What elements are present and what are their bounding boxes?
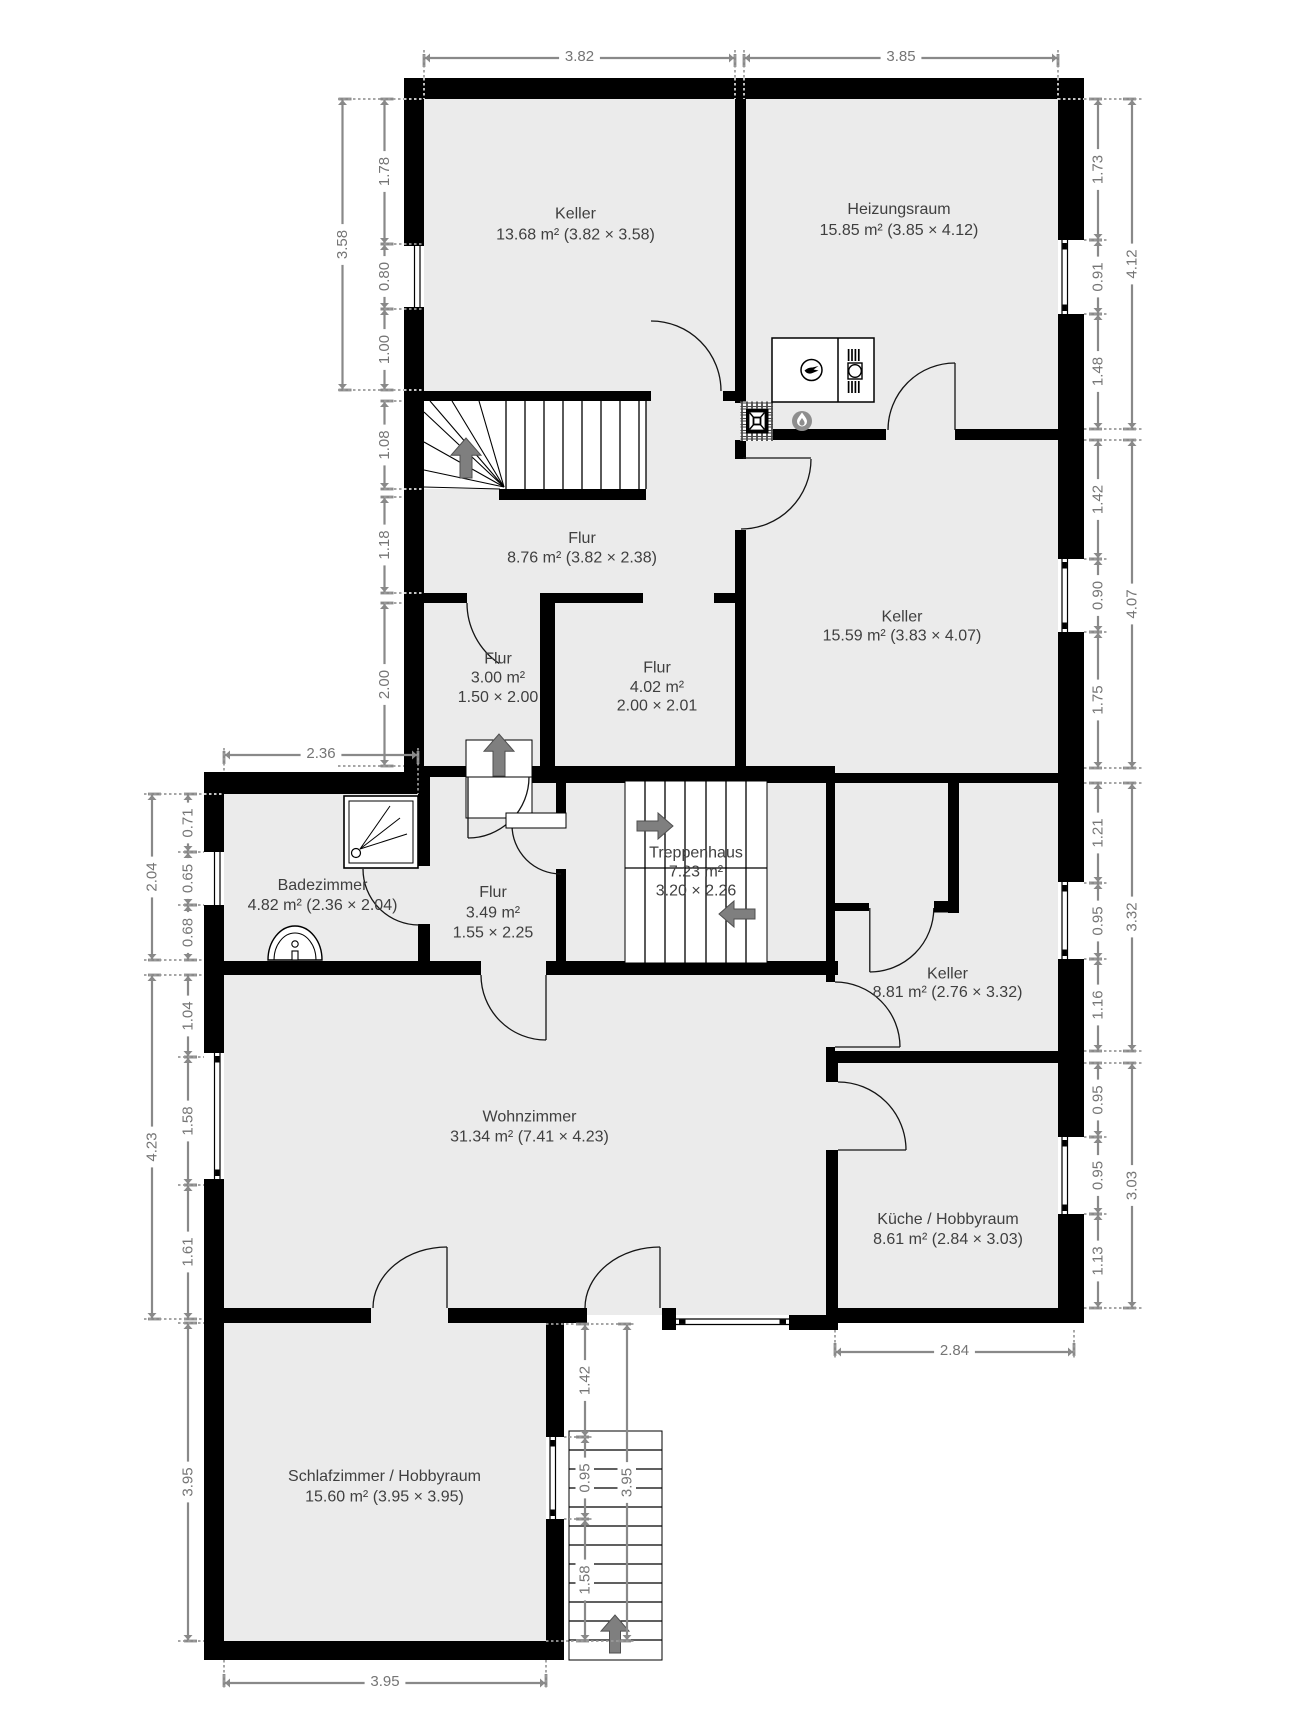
- svg-text:3.00 m²: 3.00 m²: [471, 670, 526, 687]
- svg-text:1.16: 1.16: [1090, 990, 1107, 1019]
- svg-text:Flur: Flur: [479, 884, 507, 901]
- svg-text:15.59 m² (3.83 × 4.07): 15.59 m² (3.83 × 4.07): [823, 628, 982, 645]
- svg-text:8.81 m² (2.76 × 3.32): 8.81 m² (2.76 × 3.32): [873, 984, 1023, 1001]
- svg-text:15.85 m² (3.85 × 4.12): 15.85 m² (3.85 × 4.12): [820, 222, 979, 239]
- svg-text:1.13: 1.13: [1090, 1246, 1107, 1275]
- svg-text:0.71: 0.71: [180, 808, 197, 837]
- svg-text:Flur: Flur: [643, 660, 671, 677]
- svg-text:2.00: 2.00: [376, 670, 393, 699]
- svg-text:1.58: 1.58: [180, 1106, 197, 1135]
- svg-text:4.82 m² (2.36 × 2.04): 4.82 m² (2.36 × 2.04): [248, 897, 398, 914]
- svg-text:Flur: Flur: [484, 651, 512, 668]
- svg-text:13.68 m² (3.82 × 3.58): 13.68 m² (3.82 × 3.58): [496, 227, 655, 244]
- svg-text:0.90: 0.90: [1090, 581, 1107, 610]
- svg-text:1.42: 1.42: [1090, 485, 1107, 514]
- svg-text:4.07: 4.07: [1124, 589, 1141, 618]
- svg-text:1.75: 1.75: [1090, 685, 1107, 714]
- svg-text:Küche / Hobbyraum: Küche / Hobbyraum: [877, 1211, 1018, 1228]
- svg-text:3.32: 3.32: [1124, 902, 1141, 931]
- svg-text:1.00: 1.00: [376, 335, 393, 364]
- svg-text:Flur: Flur: [568, 530, 596, 547]
- svg-text:3.82: 3.82: [565, 48, 594, 65]
- svg-text:3.20 × 2.26: 3.20 × 2.26: [656, 883, 737, 900]
- svg-text:1.42: 1.42: [577, 1366, 594, 1395]
- svg-text:1.48: 1.48: [1090, 357, 1107, 386]
- svg-text:0.68: 0.68: [180, 918, 197, 947]
- svg-text:3.49 m²: 3.49 m²: [466, 905, 521, 922]
- svg-text:15.60 m² (3.95 × 3.95): 15.60 m² (3.95 × 3.95): [305, 1489, 464, 1506]
- svg-text:0.95: 0.95: [1090, 906, 1107, 935]
- svg-text:1.61: 1.61: [180, 1237, 197, 1266]
- svg-text:3.95: 3.95: [370, 1673, 399, 1690]
- svg-text:3.95: 3.95: [180, 1467, 197, 1496]
- svg-text:Keller: Keller: [927, 966, 969, 983]
- svg-text:Badezimmer: Badezimmer: [278, 877, 368, 894]
- svg-text:0.91: 0.91: [1090, 262, 1107, 291]
- svg-text:0.95: 0.95: [1090, 1161, 1107, 1190]
- svg-text:0.95: 0.95: [577, 1463, 594, 1492]
- svg-text:4.12: 4.12: [1124, 249, 1141, 278]
- svg-text:2.36: 2.36: [306, 745, 335, 762]
- svg-text:1.55 × 2.25: 1.55 × 2.25: [453, 925, 534, 942]
- svg-text:2.00 × 2.01: 2.00 × 2.01: [617, 698, 698, 715]
- svg-text:1.78: 1.78: [376, 157, 393, 186]
- svg-text:1.18: 1.18: [376, 530, 393, 559]
- svg-text:1.08: 1.08: [376, 430, 393, 459]
- svg-text:3.03: 3.03: [1124, 1171, 1141, 1200]
- svg-text:31.34 m² (7.41 × 4.23): 31.34 m² (7.41 × 4.23): [450, 1129, 609, 1146]
- svg-text:Keller: Keller: [882, 609, 924, 626]
- svg-text:Keller: Keller: [555, 206, 597, 223]
- svg-text:1.58: 1.58: [577, 1565, 594, 1594]
- svg-text:Wohnzimmer: Wohnzimmer: [483, 1109, 578, 1126]
- svg-text:4.23: 4.23: [144, 1132, 161, 1161]
- svg-text:1.73: 1.73: [1090, 155, 1107, 184]
- svg-text:0.95: 0.95: [1090, 1085, 1107, 1114]
- svg-text:7.23 m²: 7.23 m²: [669, 864, 724, 881]
- svg-text:Heizungsraum: Heizungsraum: [847, 201, 950, 218]
- svg-text:1.21: 1.21: [1090, 818, 1107, 847]
- svg-text:3.58: 3.58: [334, 230, 351, 259]
- svg-text:2.04: 2.04: [144, 862, 161, 891]
- svg-text:Schlafzimmer / Hobbyraum: Schlafzimmer / Hobbyraum: [288, 1468, 481, 1485]
- svg-text:Treppenhaus: Treppenhaus: [649, 845, 743, 862]
- svg-text:0.80: 0.80: [376, 262, 393, 291]
- svg-text:2.84: 2.84: [940, 1342, 969, 1359]
- svg-text:1.04: 1.04: [180, 1001, 197, 1030]
- svg-text:8.61 m² (2.84 × 3.03): 8.61 m² (2.84 × 3.03): [873, 1231, 1023, 1248]
- svg-text:1.50 × 2.00: 1.50 × 2.00: [458, 689, 539, 706]
- svg-text:4.02 m²: 4.02 m²: [630, 679, 685, 696]
- svg-text:3.85: 3.85: [886, 48, 915, 65]
- svg-text:0.65: 0.65: [180, 864, 197, 893]
- svg-text:8.76 m² (3.82 × 2.38): 8.76 m² (3.82 × 2.38): [507, 550, 657, 567]
- svg-text:3.95: 3.95: [619, 1468, 636, 1497]
